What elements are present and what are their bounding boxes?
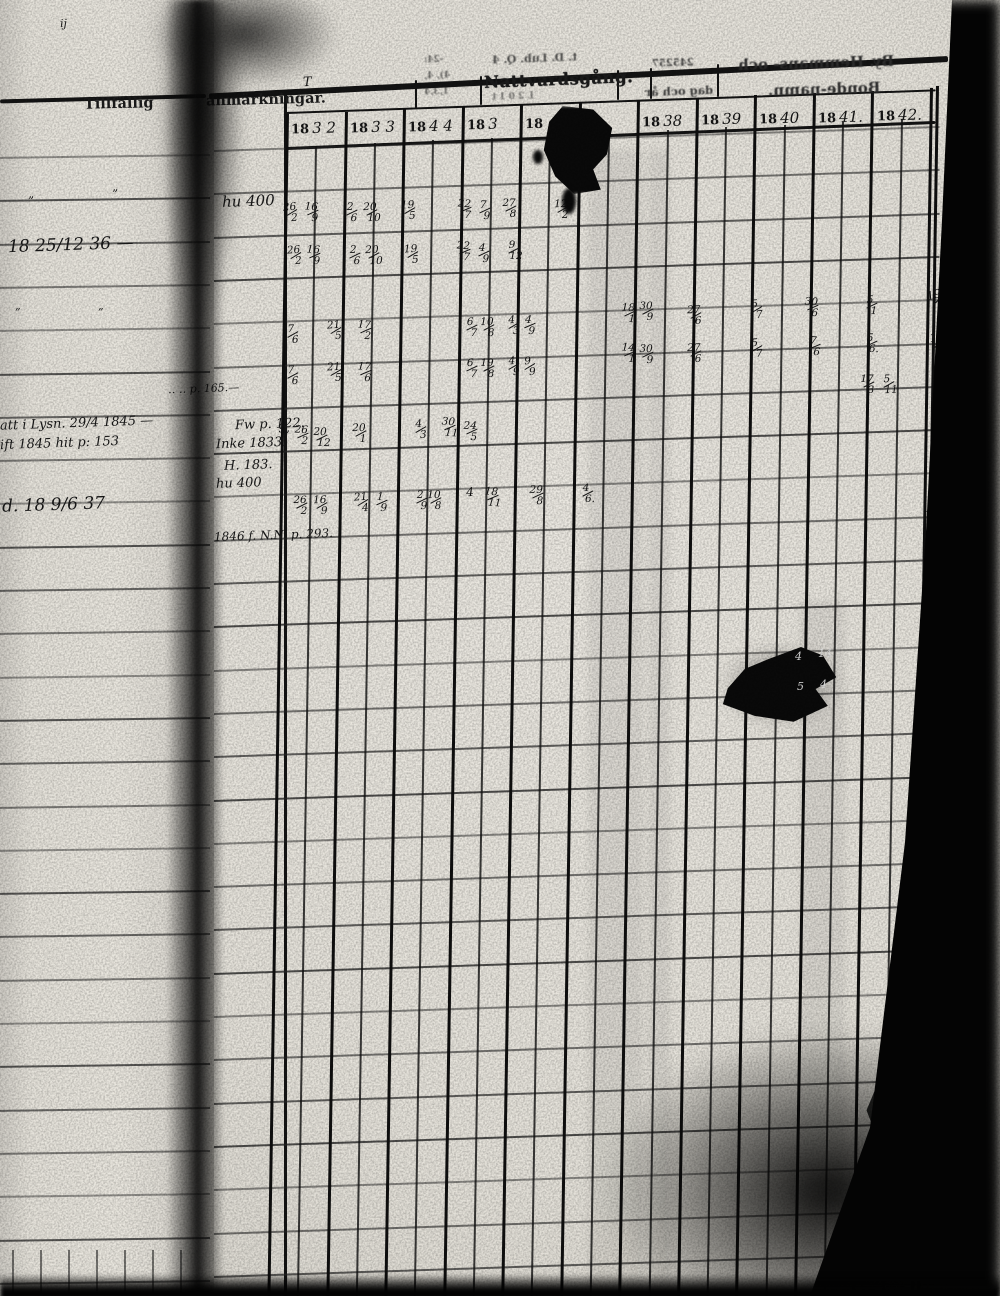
left-page-note: ” [28,194,35,208]
remark-note: 1846 f. N.N. p. 293. [214,526,333,544]
scan-edge-bottom [0,1274,1000,1296]
hole-digit: 4 [795,650,802,663]
left-page-note: ” [112,187,119,201]
ink-blot-drip [562,188,576,214]
ink-blot-speck [533,150,543,164]
hole-digit: 5 [797,680,804,693]
left-page-note: ij [60,17,67,30]
left-page-note: ” [15,306,21,319]
left-page-note: ift 1845 hit p: 153 [0,434,119,453]
hole-digit: 4 [820,678,827,691]
remark-note: H. 183. [224,457,273,474]
left-page-note: ” [98,306,104,319]
left-page-note: 18 25/12 36 — [8,233,134,257]
left-page-note: att i Lysn. 29/4 1845 — [0,413,153,433]
remark-note: Fw p. 122. [235,416,305,433]
binding-gutter-shadow-top [150,0,245,420]
left-page-note: d. 18 9/6 37 [2,493,106,517]
remark-note: Inke 1833. [216,435,287,452]
hole-digit: 14 [818,647,832,660]
scanned-ledger-page: Tillfällig anmärkningar. Nattvardsgång. … [0,0,1000,1296]
remark-note: T [303,75,312,90]
